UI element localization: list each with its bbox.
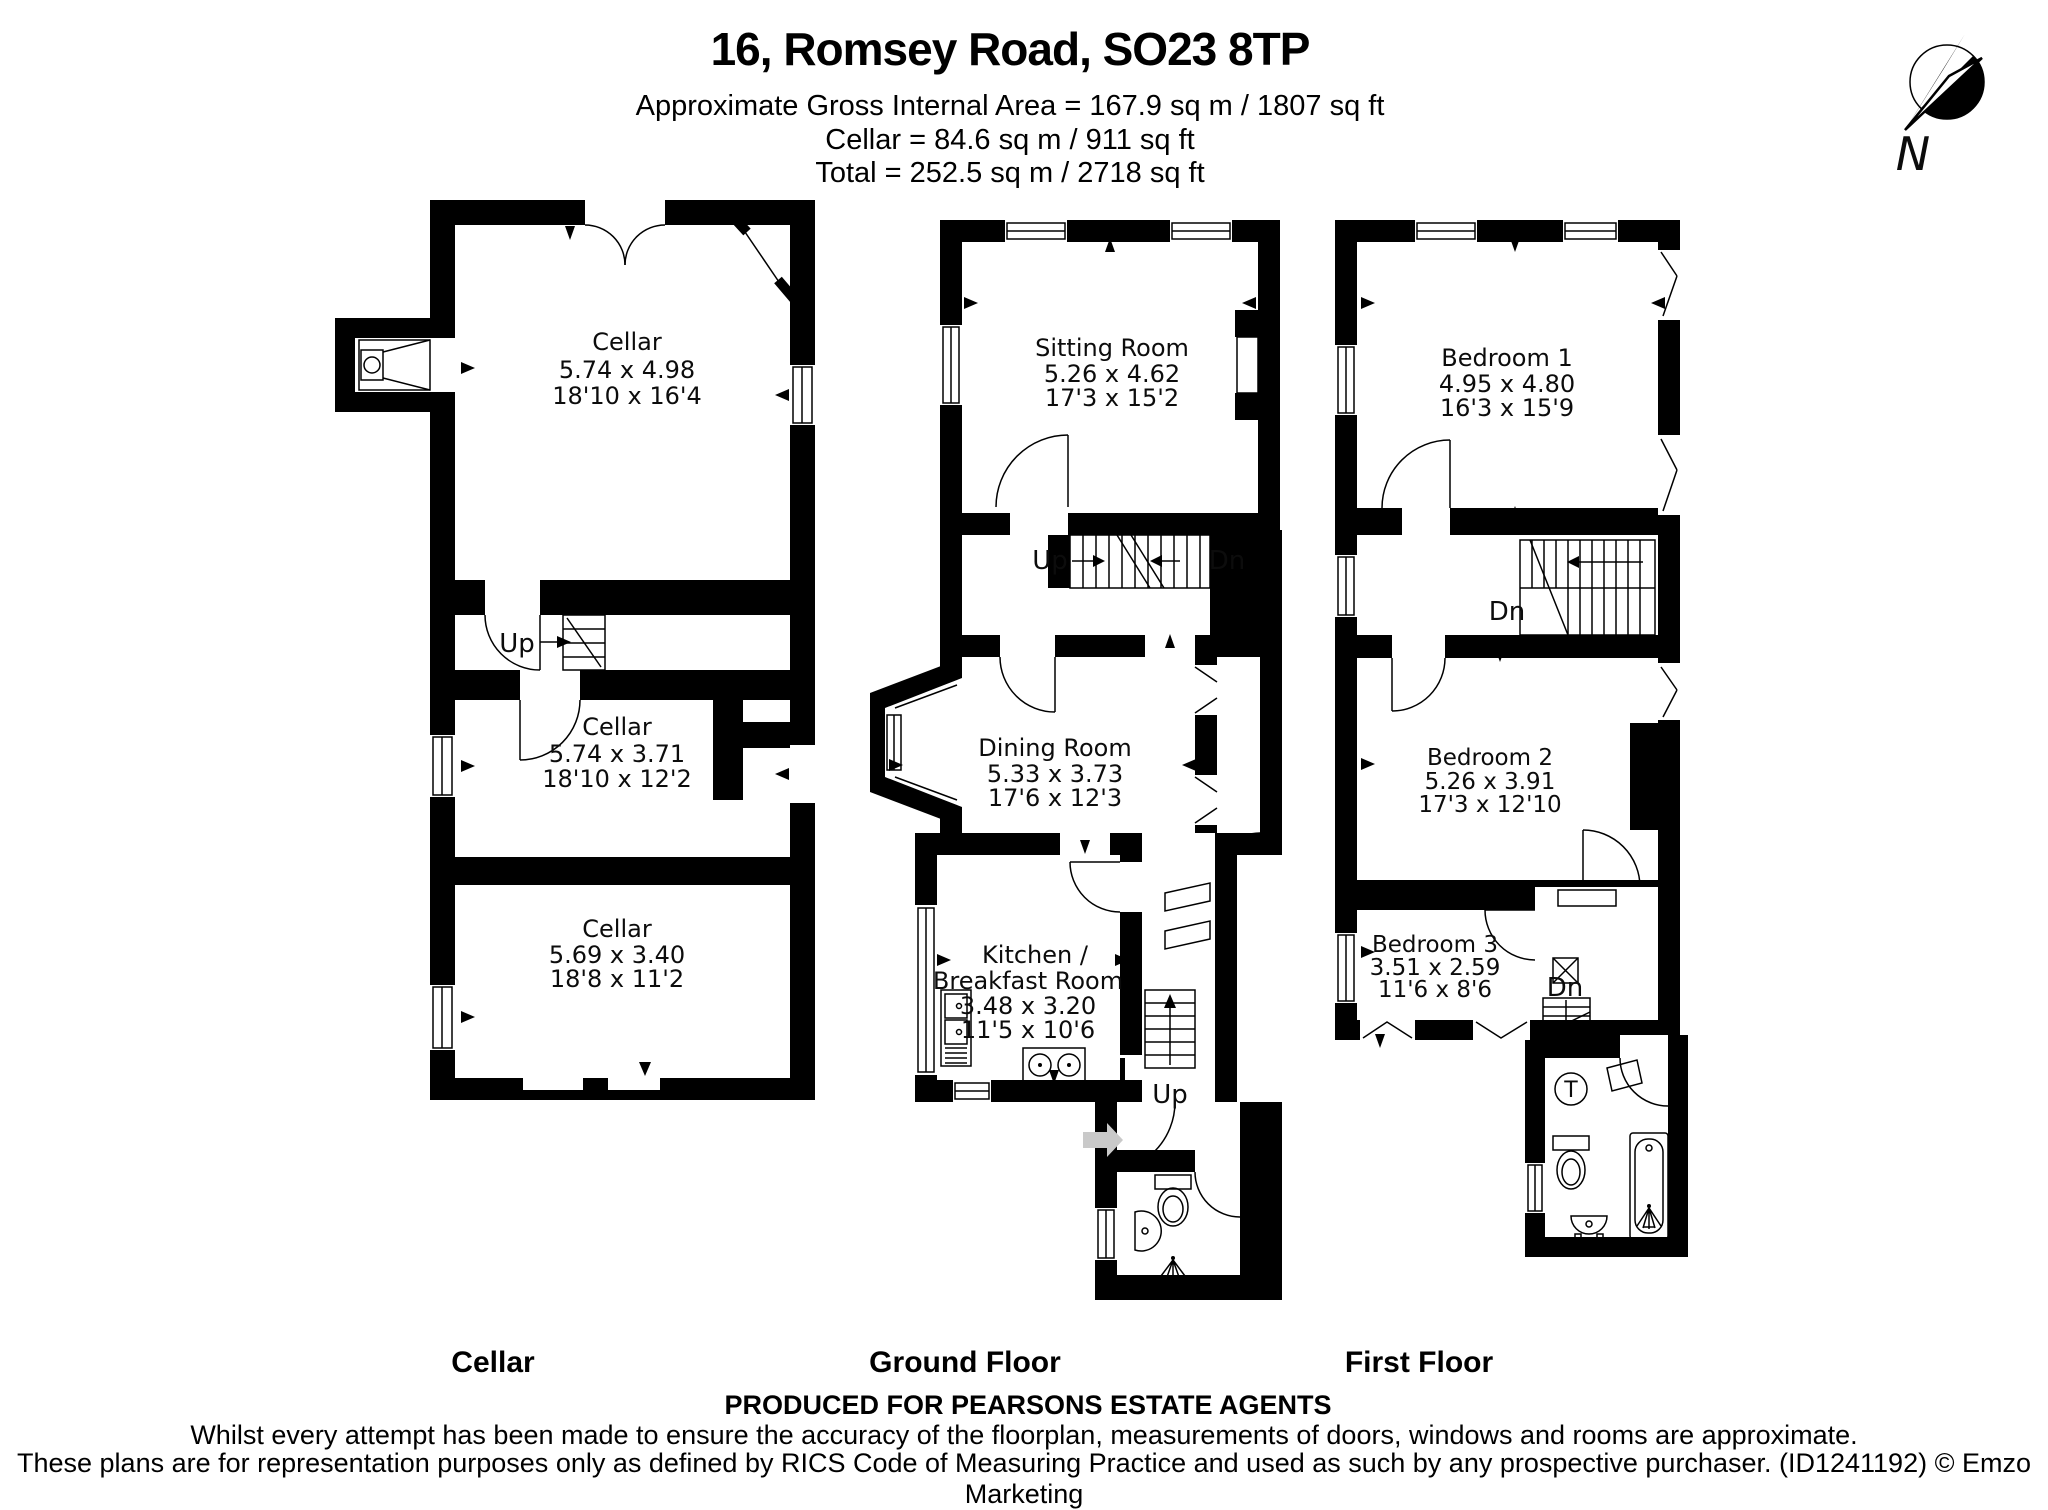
bedroom1-label: Bedroom 1 4.95 x 4.80 16'3 x 15'9 (1439, 344, 1575, 422)
room-name: Bedroom 1 (1441, 344, 1572, 372)
room-name: Cellar (592, 328, 662, 356)
bedroom3-label: Bedroom 3 3.51 x 2.59 11'6 x 8'6 (1370, 932, 1501, 1003)
room-name: Cellar (582, 915, 652, 943)
page-title: 16, Romsey Road, SO23 8TP (0, 22, 2020, 76)
north-label: N (1896, 127, 1930, 181)
room-imperial: 11'5 x 10'6 (961, 1016, 1095, 1044)
room-imperial: 18'8 x 11'2 (550, 965, 684, 993)
room-imperial: 17'3 x 12'10 (1418, 792, 1561, 818)
room-name: Sitting Room (1035, 334, 1189, 362)
room-imperial: 11'6 x 8'6 (1378, 977, 1492, 1003)
room-name-line1: Kitchen / (982, 941, 1089, 969)
room-name: Bedroom 2 (1427, 745, 1553, 771)
floor-label-ground: Ground Floor (869, 1346, 1061, 1380)
first-floorplan: T Dn Dn Bedroom 1 4.95 x 4.80 16'3 x 15'… (1325, 190, 1700, 1270)
disclaimer-line-1: Whilst every attempt has been made to en… (0, 1420, 2048, 1451)
room-imperial: 18'10 x 16'4 (552, 382, 702, 410)
first-stairs-dn-label: Dn (1489, 597, 1526, 627)
disclaimer-line-2: These plans are for representation purpo… (0, 1448, 2048, 1510)
room-imperial: 18'10 x 12'2 (542, 765, 692, 793)
floor-label-cellar: Cellar (451, 1346, 534, 1380)
compass-needle (1905, 34, 1984, 130)
sitting-room-label: Sitting Room 5.26 x 4.62 17'3 x 15'2 (1035, 334, 1189, 412)
kitchen-stairs-up-label: Up (1152, 1080, 1188, 1110)
room-metric: 5.74 x 3.71 (549, 740, 685, 768)
floor-label-first: First Floor (1345, 1346, 1493, 1380)
room-imperial: 16'3 x 15'9 (1440, 394, 1574, 422)
north-compass-icon: N (1885, 18, 2025, 183)
tank-label: T (1563, 1078, 1578, 1103)
ground-floorplan: Up Dn Up Sitting Room 5.26 x 4.62 17'3 x… (865, 190, 1285, 1305)
area-line-total: Total = 252.5 sq m / 2718 sq ft (0, 157, 2020, 190)
room-name: Dining Room (978, 734, 1131, 762)
room-name-line2: Breakfast Room (933, 967, 1123, 995)
area-line-total-internal: Approximate Gross Internal Area = 167.9 … (0, 90, 2020, 123)
room-metric: 5.74 x 4.98 (559, 356, 695, 384)
ground-stairs-up-label: Up (1032, 546, 1068, 576)
bedroom2-label: Bedroom 2 5.26 x 3.91 17'3 x 12'10 (1418, 745, 1561, 818)
ground-stairs-dn-label: Dn (1209, 546, 1246, 576)
room-imperial: 17'3 x 15'2 (1045, 384, 1179, 412)
back-stairs-dn-label: Dn (1547, 973, 1584, 1003)
bedroom2-pillar (1630, 723, 1658, 830)
room-imperial: 17'6 x 12'3 (988, 784, 1122, 812)
room-name: Cellar (582, 713, 652, 741)
cellar-floorplan: Up Cellar 5.74 x 4.98 18'10 x 16'4 Cella… (335, 190, 835, 1105)
dining-room-label: Dining Room 5.33 x 3.73 17'6 x 12'3 (978, 734, 1131, 812)
cellar-stairs-up-label: Up (499, 629, 535, 659)
area-line-cellar: Cellar = 84.6 sq m / 911 sq ft (0, 124, 2020, 157)
produced-for-line: PRODUCED FOR PEARSONS ESTATE AGENTS (0, 1390, 2048, 1421)
